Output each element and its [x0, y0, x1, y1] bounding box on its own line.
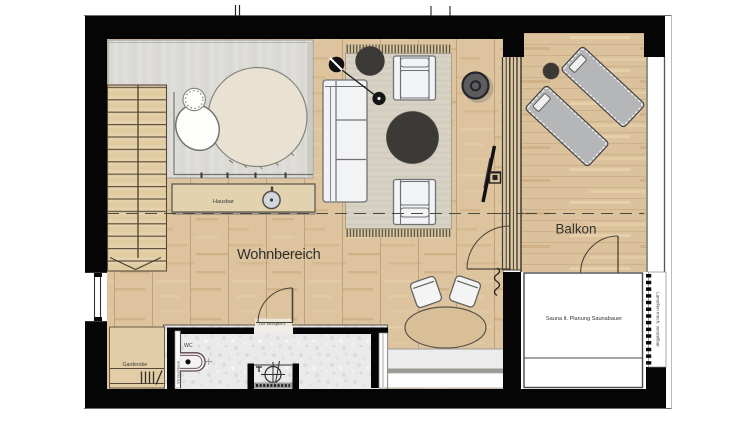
svg-text:VS raumhoch: VS raumhoch [177, 361, 181, 384]
svg-text:Hausbar: Hausbar [213, 199, 234, 205]
svg-text:Tür versperrt: Tür versperrt [258, 321, 286, 327]
svg-text:Balkon: Balkon [556, 222, 597, 237]
svg-text:Lamellen mech. verstellbar: Lamellen mech. verstellbar [656, 292, 661, 347]
svg-text:Wohnbereich: Wohnbereich [237, 247, 321, 263]
svg-text:Garderobe: Garderobe [123, 362, 148, 368]
svg-text:Sauna lt. Planung Saunabauer: Sauna lt. Planung Saunabauer [546, 316, 622, 322]
svg-text:WC: WC [184, 343, 193, 349]
